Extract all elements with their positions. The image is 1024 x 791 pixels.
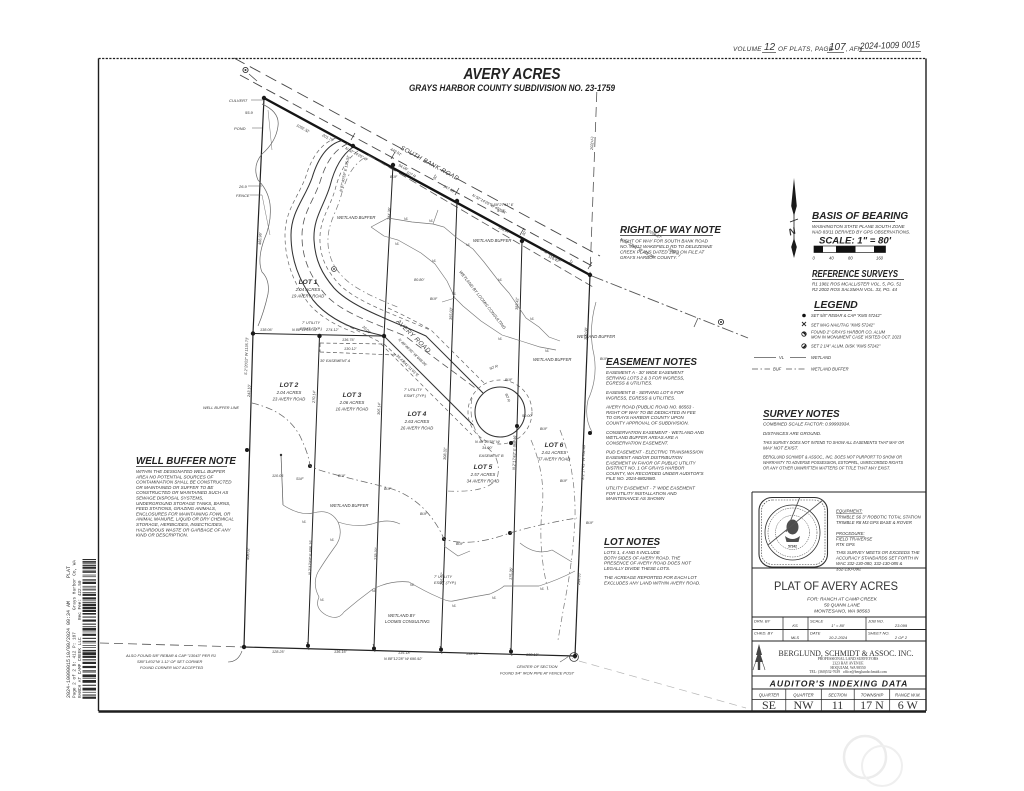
svg-text:2.04 ACRES: 2.04 ACRES [276, 390, 302, 395]
svg-text:128.25': 128.25' [272, 650, 285, 654]
svg-text:EQUIPMENT:: EQUIPMENT: [836, 509, 863, 514]
svg-text:274.12': 274.12' [325, 328, 339, 332]
svg-text:LEGALLY DIVIDE THESE LOTS.: LEGALLY DIVIDE THESE LOTS. [604, 566, 670, 571]
svg-text:VL: VL [452, 604, 456, 608]
svg-text:KS: KS [792, 623, 798, 628]
svg-text:TRIMBLE R8 M3 GPS BASE & ROVER: TRIMBLE R8 M3 GPS BASE & ROVER [836, 520, 912, 525]
svg-text:Page 2 of 2 B: 412 P: 107: Page 2 of 2 B: 412 P: 107 [73, 632, 78, 698]
svg-text:GRAYS HARBOR COUNTY SUBDIVISIO: GRAYS HARBOR COUNTY SUBDIVISION NO. 23-1… [409, 83, 615, 93]
svg-text:80.80': 80.80' [414, 278, 425, 282]
svg-text:Rec Fee: 422.50: Rec Fee: 422.50 [78, 580, 83, 620]
svg-text:WETLAND BUFFER: WETLAND BUFFER [533, 357, 571, 362]
svg-text:CONTAMINATION SHALL BE CONSTRU: CONTAMINATION SHALL BE CONSTRUCTED [136, 480, 232, 485]
svg-text:EASEMENT NOTES: EASEMENT NOTES [606, 357, 697, 368]
svg-text:EASEMENT IN FAVOR OF PUBLIC UT: EASEMENT IN FAVOR OF PUBLIC UTILITY [606, 460, 697, 465]
svg-text:2.61 ACRES: 2.61 ACRES [541, 450, 567, 455]
svg-text:DRN. BY: DRN. BY [754, 619, 771, 624]
svg-text:VL: VL [330, 538, 334, 542]
svg-text:278.32': 278.32' [374, 547, 378, 561]
svg-text:N 49°40'59" W: N 49°40'59" W [475, 440, 500, 444]
svg-text:WETLAND BUFFER: WETLAND BUFFER [811, 367, 849, 372]
svg-text:R1 1981 ROS MCALLISTER VOL. 5,: R1 1981 ROS MCALLISTER VOL. 5, PG. 51 [812, 282, 902, 287]
svg-text:2.06 ACRES: 2.06 ACRES [339, 400, 365, 405]
svg-text:305.14': 305.14' [377, 402, 381, 415]
svg-text:SE: SE [762, 698, 776, 712]
svg-text:LOTS 1, 4 AND 5 INCLUDE: LOTS 1, 4 AND 5 INCLUDE [604, 550, 661, 555]
svg-text:DATE: DATE [810, 631, 821, 636]
svg-text:ALSO FOUND 5/8" REBAR & CAP "1: ALSO FOUND 5/8" REBAR & CAP "13043" PER … [125, 653, 216, 658]
svg-text:7' UTILITY: 7' UTILITY [302, 321, 320, 325]
svg-text:JOB NO.: JOB NO. [867, 619, 884, 624]
svg-text:WITHIN THE DESIGNATED WELL BUF: WITHIN THE DESIGNATED WELL BUFFER [136, 469, 226, 474]
svg-text:CENTER OF SECTION: CENTER OF SECTION [517, 664, 558, 669]
svg-text:34.90': 34.90' [482, 446, 493, 450]
svg-text:2024-10090015: 2024-10090015 [66, 659, 72, 698]
svg-text:244.36': 244.36' [387, 207, 392, 221]
svg-text:2 OF 2: 2 OF 2 [894, 635, 908, 640]
svg-text:VL: VL [372, 589, 376, 593]
svg-text:23.099: 23.099 [894, 623, 908, 628]
svg-text:16 AVERY ROAD: 16 AVERY ROAD [336, 407, 369, 412]
svg-text:FIELD TRAVERSE: FIELD TRAVERSE [836, 537, 872, 542]
svg-text:LOT 6: LOT 6 [545, 442, 564, 449]
svg-text:SET 2 1/4" ALUM. DISK "KMS 572: SET 2 1/4" ALUM. DISK "KMS 57242" [811, 344, 881, 349]
svg-text:POND: POND [234, 126, 246, 131]
svg-text:110.06: 110.06 [272, 474, 284, 478]
svg-text:PUD EASEMENT - ELECTRIC TRANSM: PUD EASEMENT - ELECTRIC TRANSMISSION [606, 450, 704, 455]
svg-text:AUDITOR'S INDEXING DATA: AUDITOR'S INDEXING DATA [769, 679, 909, 689]
svg-text:34 AVERY ROAD: 34 AVERY ROAD [467, 479, 500, 484]
svg-text:REFERENCE SURVEYS: REFERENCE SURVEYS [812, 269, 898, 280]
svg-text:LOT 2: LOT 2 [280, 382, 299, 389]
svg-text:11: 11 [832, 698, 844, 712]
svg-text:LOOMIS CONSULTING: LOOMIS CONSULTING [385, 619, 430, 624]
svg-text:WETLAND BY: WETLAND BY [388, 613, 416, 618]
svg-text:HAZARDOUS WASTE OR GARBAGE OF: HAZARDOUS WASTE OR GARBAGE OF ANY [136, 527, 232, 532]
svg-text:SCALE: 1" = 80': SCALE: 1" = 80' [819, 235, 892, 246]
svg-text:S80°14'02"W 1.12' OF SET CORNE: S80°14'02"W 1.12' OF SET CORNER [137, 659, 203, 664]
svg-text:FEED STATIONS, GRAZING ANIMALS: FEED STATIONS, GRAZING ANIMALS, [136, 506, 216, 511]
svg-text:LOT NOTES: LOT NOTES [604, 537, 661, 548]
svg-text:TEL: (360)532-7639 office@be: TEL: (360)532-7639 office@berglundschmid… [809, 670, 887, 674]
svg-text:EXCLUDES ANY LAND WITHIN AVERY: EXCLUDES ANY LAND WITHIN AVERY ROAD. [604, 581, 700, 586]
svg-text:OR ANY OTHER UNWRITTEN MATTERS: OR ANY OTHER UNWRITTEN MATTERS OF TITLE … [763, 465, 890, 470]
svg-text:BUF: BUF [390, 175, 398, 179]
svg-text:ENCLOSURES FOR MAINTAINING FOW: ENCLOSURES FOR MAINTAINING FOWL OR [136, 511, 231, 516]
svg-text:FOUND 3/4" IRON PIPE AT FENCE: FOUND 3/4" IRON PIPE AT FENCE POST [500, 671, 575, 676]
svg-text:VL: VL [320, 598, 324, 602]
svg-text:160: 160 [876, 256, 884, 261]
svg-text:VL: VL [540, 587, 544, 591]
svg-text:RIGHT OF WAY TO BE DEDICATED I: RIGHT OF WAY TO BE DEDICATED IN FEE [606, 410, 697, 415]
svg-text:MLS: MLS [791, 635, 800, 640]
svg-text:130.12': 130.12' [344, 347, 357, 351]
svg-text:SET 5/8" REBAR & CAP "KMS 5724: SET 5/8" REBAR & CAP "KMS 57242" [811, 313, 882, 318]
svg-text:VL: VL [452, 292, 456, 296]
svg-text:TRIMBLE S6 3" ROBOTIC TOTAL ST: TRIMBLE S6 3" ROBOTIC TOTAL STATION [836, 515, 922, 520]
svg-text:LEGEND: LEGEND [814, 299, 858, 311]
svg-text:10/09/2024 09:34 AM: 10/09/2024 09:34 AM [66, 601, 72, 658]
svg-text:332-130-090.: 332-130-090. [836, 567, 862, 572]
svg-text:RANGE W.M.: RANGE W.M. [895, 693, 921, 698]
svg-text:136.16': 136.16' [334, 650, 347, 654]
svg-text:BUF: BUF [560, 479, 568, 483]
svg-text:406.02': 406.02' [246, 547, 250, 560]
svg-text:FENCE: FENCE [236, 193, 250, 198]
svg-text:40: 40 [829, 256, 834, 261]
svg-text:VL: VL [432, 259, 436, 263]
svg-text:SCALE: SCALE [810, 619, 823, 624]
svg-text:FOUND CORNER NOT ACCEPTED: FOUND CORNER NOT ACCEPTED [140, 665, 203, 670]
svg-text:7' UTILITY: 7' UTILITY [434, 575, 452, 579]
svg-text:80: 80 [848, 256, 853, 261]
svg-text:VOLUME: VOLUME [733, 46, 762, 53]
svg-text:BUF: BUF [540, 427, 548, 431]
svg-text:UNDERGROUND STORAGE TANKS, BAR: UNDERGROUND STORAGE TANKS, BARNS, [136, 501, 230, 506]
svg-text:WETLAND BUFFER: WETLAND BUFFER [330, 503, 368, 508]
svg-text:VL: VL [404, 217, 408, 221]
svg-text:DISTRICT NO. 1 OF GRAYS HARBOR: DISTRICT NO. 1 OF GRAYS HARBOR [606, 466, 685, 471]
svg-text:SHEET NO.: SHEET NO. [868, 631, 890, 636]
svg-text:2024-1009 0015: 2024-1009 0015 [859, 39, 921, 51]
svg-text:BUF: BUF [384, 487, 392, 491]
svg-text:BASIS OF BEARING: BASIS OF BEARING [812, 211, 908, 222]
svg-text:RIGHT OF WAY FOR SOUTH BANK RO: RIGHT OF WAY FOR SOUTH BANK ROAD [620, 239, 709, 244]
svg-text:17 N: 17 N [860, 698, 884, 712]
svg-text:2.04 ACRES: 2.04 ACRES [295, 287, 321, 292]
svg-text:EASEMENT B: EASEMENT B [479, 454, 504, 458]
svg-text:SECTION: SECTION [828, 693, 848, 698]
svg-text:23 AVERY ROAD: 23 AVERY ROAD [272, 397, 306, 402]
svg-text:COUNTY, WA RECORDED UNDER AUDI: COUNTY, WA RECORDED UNDER AUDITOR'S [606, 471, 703, 476]
svg-text:PRESENCE OF AVERY ROAD DOES NO: PRESENCE OF AVERY ROAD DOES NOT [604, 561, 692, 566]
svg-text:AVERY ACRES: AVERY ACRES [463, 66, 562, 83]
svg-text:SURVEY NOTES: SURVEY NOTES [763, 409, 840, 420]
svg-text:EASEMENT A - 30' WIDE EASEMENT: EASEMENT A - 30' WIDE EASEMENT [606, 370, 685, 375]
svg-text:BUF: BUF [456, 542, 464, 546]
svg-text:OF PLATS, PAGE: OF PLATS, PAGE [778, 46, 834, 53]
svg-text:PLAT OF AVERY ACRES: PLAT OF AVERY ACRES [774, 579, 898, 593]
svg-text:LOT 4: LOT 4 [408, 411, 427, 418]
svg-text:BUF: BUF [586, 521, 594, 525]
svg-text:CHKD. BY: CHKD. BY [754, 631, 773, 636]
svg-text:QUARTER: QUARTER [759, 693, 779, 698]
svg-text:RANCH AT CAMP CREEK LLC: RANCH AT CAMP CREEK LLC [78, 637, 83, 698]
svg-text:50.00': 50.00' [522, 414, 533, 418]
svg-text:RTK GPS: RTK GPS [836, 542, 855, 547]
svg-text:COMBINED SCALE FACTOR: 0.99993: COMBINED SCALE FACTOR: 0.99993934. [763, 422, 850, 427]
svg-text:BUF: BUF [420, 512, 428, 516]
svg-text:2.57 ACRES: 2.57 ACRES [470, 472, 496, 477]
svg-text:294.33': 294.33' [577, 572, 581, 586]
svg-text:CONSERVATION EASEMENT - WETLAN: CONSERVATION EASEMENT - WETLAND AND [606, 430, 705, 435]
svg-text:EASEMENT AND/OR DISTRIBUTION: EASEMENT AND/OR DISTRIBUTION [606, 455, 683, 460]
svg-text:CULVERT: CULVERT [229, 98, 248, 103]
svg-text:19 AVERY ROAD: 19 AVERY ROAD [292, 294, 325, 299]
svg-text:107: 107 [829, 42, 846, 53]
svg-text:57242: 57242 [788, 545, 797, 549]
svg-text:VL: VL [429, 219, 433, 223]
svg-text:CONSERVATION EASEMENT.: CONSERVATION EASEMENT. [606, 440, 669, 445]
svg-text:SET MAG NAIL/TAG "KMS 57242": SET MAG NAIL/TAG "KMS 57242" [811, 323, 875, 328]
svg-text:BUF: BUF [338, 474, 346, 478]
svg-text:Grays Harbor Co, WA: Grays Harbor Co, WA [73, 560, 78, 610]
svg-text:CONSTRUCTED OR MAINTAINED SUCH: CONSTRUCTED OR MAINTAINED SUCH AS [136, 490, 228, 495]
svg-text:26.9: 26.9 [238, 184, 248, 189]
svg-text:VL: VL [466, 243, 470, 247]
svg-text:355.03': 355.03' [449, 307, 453, 320]
svg-text:RIGHT OF WAY NOTE: RIGHT OF WAY NOTE [620, 225, 721, 236]
svg-text:VL: VL [302, 520, 306, 524]
svg-text:GRAYS HARBOR COUNTY.: GRAYS HARBOR COUNTY. [620, 255, 677, 260]
svg-text:WETLAND BUFFER: WETLAND BUFFER [577, 334, 615, 339]
svg-text:THIS SURVEY DOES NOT INTEND TO: THIS SURVEY DOES NOT INTEND TO SHOW ALL … [763, 440, 905, 445]
svg-text:138.06': 138.06' [260, 328, 273, 332]
svg-text:WAC 332-130-080, 332-130-085 &: WAC 332-130-080, 332-130-085 & [836, 561, 902, 566]
svg-text:KIND OR DESCRIPTION.: KIND OR DESCRIPTION. [136, 533, 188, 538]
svg-text:WASHINGTON STATE PLANE SOUTH Z: WASHINGTON STATE PLANE SOUTH ZONE [812, 224, 906, 229]
svg-text:WETLAND BUFFER: WETLAND BUFFER [337, 215, 375, 220]
svg-text:71: 71 [572, 656, 576, 660]
svg-text:50 QUINN LANE: 50 QUINN LANE [824, 603, 861, 609]
svg-text:UTILITY EASEMENT - 7' WIDE EAS: UTILITY EASEMENT - 7' WIDE EASEMENT [606, 486, 696, 491]
svg-text:MAINTENANCE AS SHOWN: MAINTENANCE AS SHOWN [606, 496, 665, 501]
svg-text:NW: NW [794, 698, 815, 712]
svg-text:THE ACREAGE REPORTED FOR EACH: THE ACREAGE REPORTED FOR EACH LOT [604, 575, 698, 580]
svg-text:26 AVERY ROAD: 26 AVERY ROAD [400, 426, 434, 431]
svg-text:MON IN MONUMENT CASE VISITED O: MON IN MONUMENT CASE VISITED OCT. 2023 [811, 335, 902, 340]
svg-text:6 W: 6 W [898, 698, 919, 712]
svg-text:ACCURACY STANDARDS SET FORTH I: ACCURACY STANDARDS SET FORTH IN [835, 556, 919, 561]
svg-text:WELL BUFFER LINE: WELL BUFFER LINE [203, 406, 239, 410]
svg-text:S 59°27'41" E: S 59°27'41" E [490, 203, 514, 207]
svg-text:7' UTILITY: 7' UTILITY [404, 388, 422, 392]
svg-text:BUF: BUF [430, 297, 438, 301]
svg-text:WARRANTY TO ADVERSE POSSESSION: WARRANTY TO ADVERSE POSSESSION, ESTOPPEL… [763, 460, 903, 465]
svg-text:N 88°12'28" W 690.92': N 88°12'28" W 690.92' [384, 657, 422, 661]
svg-text:1" = 80': 1" = 80' [831, 623, 845, 628]
svg-text:202(+/-): 202(+/-) [590, 136, 595, 151]
svg-text:MONTESANO, WA 98563: MONTESANO, WA 98563 [814, 609, 870, 615]
svg-text:THIS SURVEY MEETS OR EXCEEDS T: THIS SURVEY MEETS OR EXCEEDS THE [836, 550, 920, 555]
svg-text:VL: VL [395, 242, 399, 246]
svg-text:STORAGE, HERBICIDES, INSECTICI: STORAGE, HERBICIDES, INSECTICIDES, [136, 522, 223, 527]
svg-text:466.96': 466.96' [258, 232, 263, 245]
svg-text:12: 12 [764, 42, 776, 53]
svg-text:30' EASEMENT A: 30' EASEMENT A [320, 359, 351, 363]
svg-text:BOTH SIDES OF AVERY ROAD. THE: BOTH SIDES OF AVERY ROAD. THE [604, 555, 681, 560]
svg-text:ANIMAL MANURE, LIQUID OR DRY C: ANIMAL MANURE, LIQUID OR DRY CHEMICAL [135, 517, 234, 522]
svg-text:ESMT (TYP.): ESMT (TYP.) [404, 394, 427, 398]
svg-text:ESMT (TYP.): ESMT (TYP.) [434, 581, 457, 585]
svg-text:308.32': 308.32' [443, 447, 447, 460]
svg-text:ESMT (TYP.): ESMT (TYP.) [300, 327, 323, 331]
svg-text:R2 2002 ROS SALSMAN VOL. 33, P: R2 2002 ROS SALSMAN VOL. 33, PG. 44 [812, 287, 898, 292]
svg-text:BUF: BUF [505, 378, 513, 382]
svg-text:LOT 1: LOT 1 [299, 279, 318, 286]
svg-text:VL: VL [498, 337, 502, 341]
svg-text:FOR: RANCH AT CAMP CREEK: FOR: RANCH AT CAMP CREEK [807, 597, 877, 603]
svg-text:VL: VL [779, 355, 784, 360]
svg-text:VL: VL [545, 349, 549, 353]
svg-text:BUF: BUF [773, 367, 782, 372]
svg-text:SERVING LOTS 2 & 3 FOR INGRESS: SERVING LOTS 2 & 3 FOR INGRESS, [606, 375, 684, 380]
svg-text:PROFESSIONAL LAND SURVEYORS: PROFESSIONAL LAND SURVEYORS [818, 657, 879, 661]
svg-text:NO. 99412 WAKEFIELD RD TO DELE: NO. 99412 WAKEFIELD RD TO DELEZENNE [620, 244, 713, 249]
svg-text:175.36': 175.36' [509, 567, 513, 580]
svg-text:EGRESS & UTILITIES.: EGRESS & UTILITIES. [606, 381, 653, 386]
svg-text:INGRESS, EGRESS & UTILITIES.: INGRESS, EGRESS & UTILITIES. [606, 395, 675, 400]
svg-text:COUNTY APPROVAL OF SUBDIVISION: COUNTY APPROVAL OF SUBDIVISION. [606, 421, 689, 426]
svg-text:138.18': 138.18' [466, 652, 479, 656]
svg-text:TO GRAYS HARBOR COUNTY UPON: TO GRAYS HARBOR COUNTY UPON [606, 415, 685, 420]
svg-text:SUF: SUF [296, 477, 304, 481]
svg-text:FILE NO. 2024-6802680.: FILE NO. 2024-6802680. [606, 476, 656, 481]
svg-text:138.18': 138.18' [526, 653, 539, 657]
svg-text:270.14': 270.14' [312, 390, 316, 404]
svg-text:AREA NO POTENTIAL SOURCES OF: AREA NO POTENTIAL SOURCES OF [135, 474, 214, 479]
svg-text:10-2-2024: 10-2-2024 [829, 635, 848, 640]
svg-text:2.63 ACRES: 2.63 ACRES [404, 419, 430, 424]
svg-text:243.10': 243.10' [247, 384, 251, 398]
svg-text:DISTANCES ARE GROUND.: DISTANCES ARE GROUND. [763, 431, 821, 436]
svg-text:LOT 5: LOT 5 [474, 464, 493, 471]
svg-text:VL: VL [498, 278, 502, 282]
svg-text:TOWNSHIP: TOWNSHIP [861, 693, 884, 698]
svg-text:55.9: 55.9 [245, 110, 254, 115]
svg-text:VL: VL [530, 317, 534, 321]
svg-text:5.73': 5.73' [497, 209, 505, 213]
svg-text:BERGLUND SCHMIDT & ASSOC., INC: BERGLUND SCHMIDT & ASSOC., INC. DOES NOT… [763, 455, 903, 460]
svg-text:37 AVERY ROAD: 37 AVERY ROAD [538, 457, 571, 462]
svg-text:WETLAND BUFFER AREAS ARE A: WETLAND BUFFER AREAS ARE A [606, 435, 678, 440]
svg-text:WETLAND: WETLAND [811, 355, 831, 360]
svg-text:VL: VL [492, 596, 496, 600]
svg-text:FOR UTILITY INSTALLATION AND: FOR UTILITY INSTALLATION AND [606, 491, 677, 496]
svg-text:136.76': 136.76' [342, 338, 355, 342]
svg-text:LOT 3: LOT 3 [343, 392, 362, 399]
svg-text:OR MAINTAINED OR SUFFER TO BE: OR MAINTAINED OR SUFFER TO BE [136, 485, 214, 490]
svg-text:SEWAGE DISPOSAL SYSTEMS,: SEWAGE DISPOSAL SYSTEMS, [136, 496, 203, 501]
svg-text:AVERY ROAD (PUBLIC ROAD NO. 86: AVERY ROAD (PUBLIC ROAD NO. 86563 - [605, 405, 695, 410]
svg-text:VL: VL [410, 583, 414, 587]
svg-text:PROCEDURE:: PROCEDURE: [836, 531, 865, 536]
svg-text:WELL BUFFER NOTE: WELL BUFFER NOTE [136, 456, 236, 467]
svg-text:WETLAND BUFFER: WETLAND BUFFER [473, 238, 511, 243]
svg-text:PLAT: PLAT [66, 566, 72, 578]
svg-text:QUARTER: QUARTER [793, 693, 813, 698]
svg-text:CREEK PLANS DATED 1979 ON FILE: CREEK PLANS DATED 1979 ON FILE AT [620, 250, 705, 255]
svg-text:EASEMENT B - SERVING LOT 6 FOR: EASEMENT B - SERVING LOT 6 FOR [606, 390, 684, 395]
svg-text:383.42': 383.42' [515, 297, 519, 310]
svg-text:MAY NOT EXIST.: MAY NOT EXIST. [763, 445, 799, 450]
svg-text:309.08': 309.08' [584, 327, 588, 340]
svg-text:135.18': 135.18' [398, 651, 411, 655]
